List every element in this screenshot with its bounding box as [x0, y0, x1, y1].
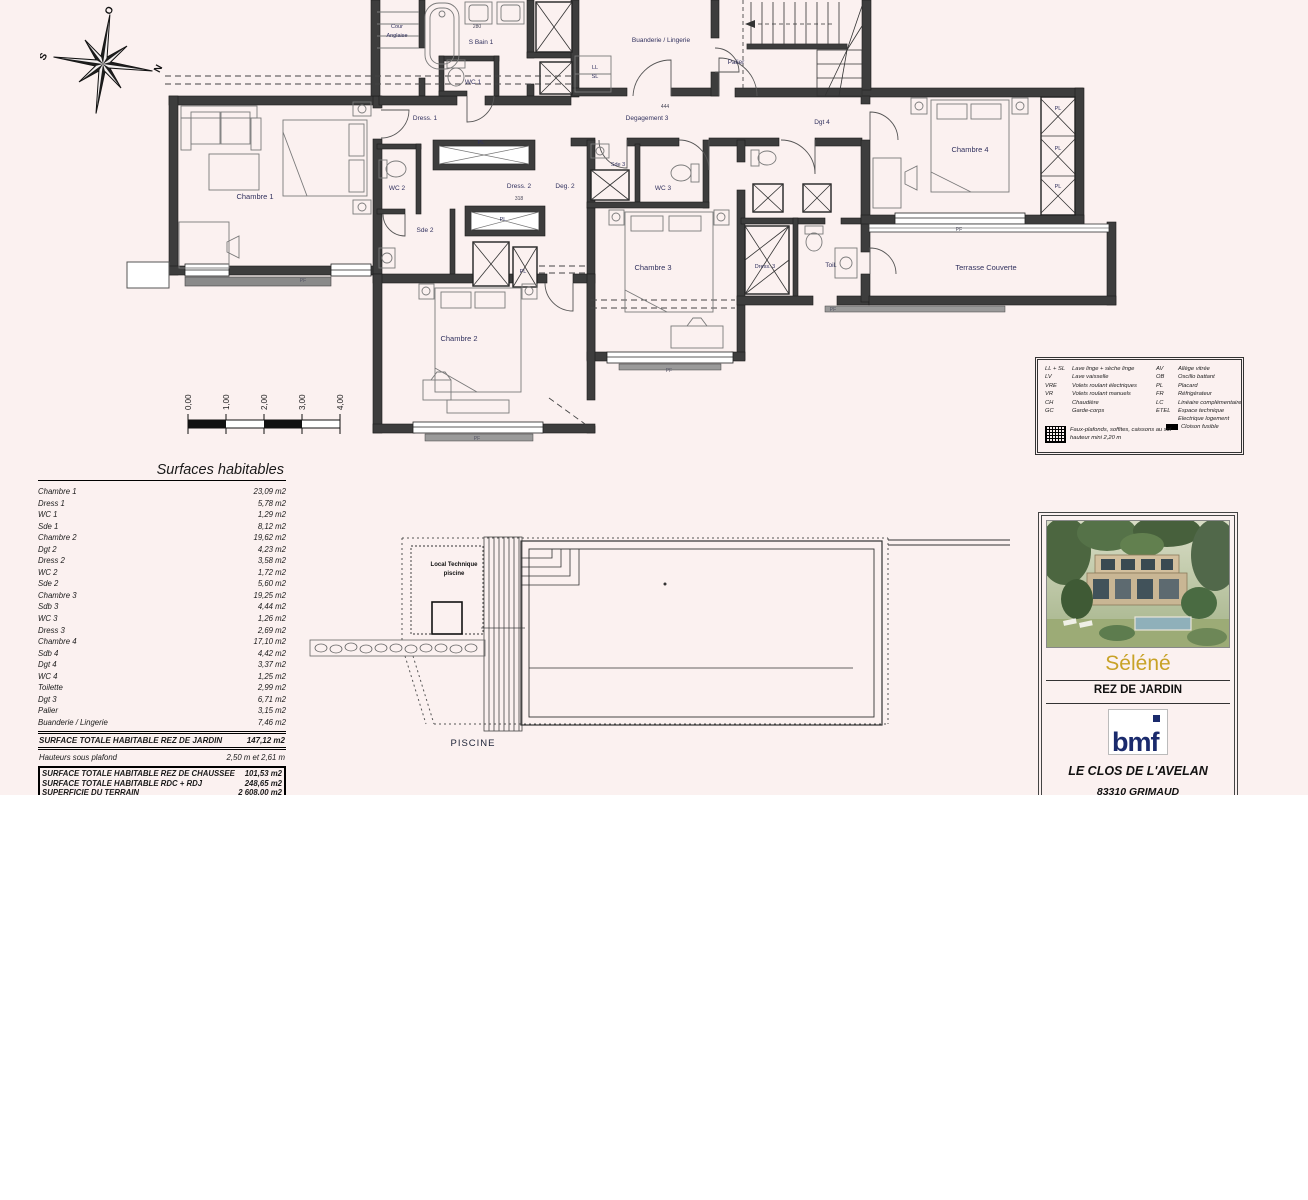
room-label-chambre-2: Chambre 2: [440, 334, 477, 343]
surface-row-label: Dgt 2: [38, 544, 57, 556]
local-technique-box: [411, 546, 483, 634]
surface-row-label: Toilette: [38, 682, 63, 694]
surface-row-value: 4,44 m2: [258, 601, 286, 613]
surface-row-label: WC 2: [38, 567, 58, 579]
surface-row-value: 3,15 m2: [258, 705, 286, 717]
room-label-deg-2: Deg. 2: [555, 183, 575, 190]
legend-desc: Volets roulant manuels: [1072, 390, 1131, 398]
drawing-sheet: O N E S: [0, 0, 1308, 795]
surface-row-label: Palier: [38, 705, 58, 717]
surface-row: Sdb 3 4,44 m2: [38, 601, 286, 613]
room-label-sde-3: Sde 3: [611, 162, 625, 168]
page: O N E S: [0, 0, 1308, 1200]
surfaces-totals-value: 101,53 m2: [245, 769, 282, 779]
room-label-s-bain-1: S Bain 1: [469, 39, 494, 46]
surface-row-value: 4,42 m2: [258, 648, 286, 660]
surfaces-totals-row: SURFACE TOTALE HABITABLE REZ DE CHAUSSEE…: [42, 769, 282, 779]
room-label-chambre-3: Chambre 3: [634, 263, 671, 272]
room-label-dress-2: Dress. 2: [507, 183, 532, 190]
surfaces-total-rdj-value: 147,12 m2: [247, 736, 285, 745]
legend-abbr: LC: [1156, 399, 1178, 407]
project-address-line-2: 83310 GRIMAUD: [1042, 786, 1234, 795]
surface-row-value: 7,46 m2: [258, 717, 286, 729]
surface-row-value: 23,09 m2: [253, 486, 286, 498]
room-label-chambre-1: Chambre 1: [236, 192, 273, 201]
legend-abbr: PL: [1156, 382, 1178, 390]
surface-row: Dress 2 3,58 m2: [38, 555, 286, 567]
surface-row-value: 4,23 m2: [258, 544, 286, 556]
surfaces-rows: Chambre 1 23,09 m2 Dress 1 5,78 m2 WC 1 …: [38, 486, 286, 728]
legend-desc: Lave vaisselle: [1072, 373, 1108, 381]
local-technique-label: Local Technique: [431, 562, 479, 568]
room-label-sde-2: Sde 2: [417, 227, 434, 234]
surface-row: Toilette 2,99 m2: [38, 682, 286, 694]
surface-row-label: Dress 1: [38, 498, 65, 510]
surface-row-label: Chambre 2: [38, 532, 77, 544]
surface-row-label: Sde 1: [38, 521, 58, 533]
surface-row-label: WC 1: [38, 509, 58, 521]
legend-row: VRE Volets roulant électriques: [1045, 382, 1155, 390]
surface-row: WC 3 1,26 m2: [38, 613, 286, 625]
legend-desc: Garde-corps: [1072, 407, 1104, 415]
legend-cloison-row: Cloison fusible: [1166, 423, 1219, 431]
legend-row: FR Réfrigérateur: [1156, 390, 1242, 398]
surfaces-totals-row: SURFACE TOTALE HABITABLE RDC + RDJ 248,6…: [42, 779, 282, 789]
surface-row-value: 8,12 m2: [258, 521, 286, 533]
legend-row: OB Oscillo battant: [1156, 373, 1242, 381]
surface-row-value: 5,78 m2: [258, 498, 286, 510]
surface-row: Sde 1 8,12 m2: [38, 521, 286, 533]
surface-row: Dress 1 5,78 m2: [38, 498, 286, 510]
room-label-toil: Toil.: [825, 262, 837, 269]
legend-row: VR Volets roulant manuels: [1045, 390, 1155, 398]
legend-column-2: AV Allège vitrée OB Oscillo battant PL P…: [1156, 365, 1242, 415]
surface-row-label: Dgt 4: [38, 659, 57, 671]
window-mark-pf-1: PF: [300, 278, 306, 284]
scale-label-2: 2,00: [260, 394, 269, 410]
project-address-line-1: LE CLOS DE L'AVELAN: [1042, 764, 1234, 778]
room-label-dgt-4: Dgt 4: [814, 119, 830, 126]
surface-row-value: 1,25 m2: [258, 671, 286, 683]
project-name: Séléné: [1042, 652, 1234, 676]
pool-title: PISCINE: [450, 738, 495, 749]
legend-abbr: GC: [1045, 407, 1072, 415]
surfaces-totals-label: SUPERFICIE DU TERRAIN: [42, 788, 139, 795]
dimension-label-3: 444: [661, 104, 670, 110]
compass-west-label: O: [103, 5, 116, 17]
room-label-dress-3: Dress. 3: [755, 264, 775, 270]
room-label-cour-anglaise-2: Anglaise: [386, 33, 407, 39]
window-mark-pf-5: PF: [830, 307, 836, 313]
room-label-chambre-4: Chambre 4: [951, 145, 988, 154]
surface-row-label: Chambre 3: [38, 590, 77, 602]
dimension-label-1: 280: [473, 24, 482, 30]
surface-row-value: 1,29 m2: [258, 509, 286, 521]
surface-row-label: Dress 2: [38, 555, 65, 567]
surface-row-label: WC 3: [38, 613, 58, 625]
legend-desc: Volets roulant électriques: [1072, 382, 1137, 390]
legend-note-line-1: Faux-plafonds, soffites, caissons au sol: [1070, 426, 1171, 434]
legend-row: PL Placard: [1156, 382, 1242, 390]
surfaces-table: Surfaces habitables Chambre 1 23,09 m2 D…: [38, 462, 286, 795]
legend-desc: Lave linge + sèche linge: [1072, 365, 1134, 373]
surface-row-label: Chambre 1: [38, 486, 77, 498]
ceiling-heights-label: Hauteurs sous plafond: [39, 753, 117, 762]
surface-row-value: 3,58 m2: [258, 555, 286, 567]
surface-row: Sdb 4 4,42 m2: [38, 648, 286, 660]
surface-row-value: 2,69 m2: [258, 625, 286, 637]
placard-label-5: PL: [500, 217, 507, 223]
surfaces-total-rdj-label: SURFACE TOTALE HABITABLE REZ DE JARDIN: [39, 736, 222, 745]
room-label-sl: SL: [592, 74, 599, 80]
surface-row-label: Dress 3: [38, 625, 65, 637]
pool-pump-box: [432, 602, 462, 634]
surface-row: Dgt 4 3,37 m2: [38, 659, 286, 671]
surface-row-value: 1,72 m2: [258, 567, 286, 579]
dimension-label-2: 318: [515, 196, 524, 202]
villa-photo: [1046, 520, 1230, 648]
window-mark-pf-3: PF: [666, 368, 672, 374]
room-labels: Cour Anglaise S Bain 1 WC 1 Dress. 1 Bua…: [236, 24, 1061, 442]
legend-abbr: LL + SL: [1045, 365, 1072, 373]
window-mark-pf-2: PF: [474, 436, 480, 442]
placard-label-6: PL: [520, 269, 527, 275]
pool-drawing: Local Technique piscine PISCINE: [305, 528, 1015, 753]
divider: [1046, 703, 1230, 704]
stairs: [743, 0, 862, 96]
legend-note-line-2: hauteur mini 2,20 m: [1070, 434, 1171, 442]
scale-label-3: 3,00: [298, 394, 307, 410]
surface-row: Palier 3,15 m2: [38, 705, 286, 717]
surface-row-label: WC 4: [38, 671, 58, 683]
surface-row-value: 1,26 m2: [258, 613, 286, 625]
bmf-logo: bmf: [1108, 709, 1168, 755]
legend-desc: Chaudière: [1072, 399, 1099, 407]
surfaces-totals-label: SURFACE TOTALE HABITABLE REZ DE CHAUSSEE: [42, 769, 235, 779]
level-name: REZ DE JARDIN: [1042, 681, 1234, 699]
room-label-palier: Palier: [728, 59, 745, 66]
surface-row-value: 5,60 m2: [258, 578, 286, 590]
legend-abbr: VRE: [1045, 382, 1072, 390]
surface-row: WC 2 1,72 m2: [38, 567, 286, 579]
legend-abbr: LV: [1045, 373, 1072, 381]
deck-planks: [481, 537, 525, 731]
ceiling-heights-row: Hauteurs sous plafond 2,50 m et 2,61 m: [38, 750, 286, 766]
title-block: Séléné REZ DE JARDIN bmf LE CLOS DE L'AV…: [1038, 512, 1238, 795]
surfaces-totals-value: 248,65 m2: [245, 779, 282, 789]
surface-row-value: 3,37 m2: [258, 659, 286, 671]
placard-label-1: PL: [1055, 106, 1062, 112]
surfaces-totals-value: 2 608,00 m2: [238, 788, 282, 795]
surface-row: WC 4 1,25 m2: [38, 671, 286, 683]
room-label-buanderie: Buanderie / Lingerie: [632, 37, 691, 44]
surface-row: Dress 3 2,69 m2: [38, 625, 286, 637]
legend-row: LL + SL Lave linge + sèche linge: [1045, 365, 1155, 373]
legend-row: LC Linéaire complémentaire: [1156, 399, 1242, 407]
surface-row: Chambre 1 23,09 m2: [38, 486, 286, 498]
local-technique-label-2: piscine: [444, 571, 465, 577]
surface-row: Dgt 2 4,23 m2: [38, 544, 286, 556]
legend-box: LL + SL Lave linge + sèche linge LV Lave…: [1035, 357, 1244, 455]
room-label-wc-3: WC 3: [655, 185, 672, 192]
surface-row-value: 19,62 m2: [253, 532, 286, 544]
surface-row: Chambre 3 19,25 m2: [38, 590, 286, 602]
room-label-wc-1: WC 1: [465, 79, 482, 86]
legend-desc: Placard: [1178, 382, 1198, 390]
title-block-inner: Séléné REZ DE JARDIN bmf LE CLOS DE L'AV…: [1041, 515, 1235, 795]
scale-label-1: 1,00: [222, 394, 231, 410]
legend-desc: Allège vitrée: [1178, 365, 1210, 373]
surface-row-value: 6,71 m2: [258, 694, 286, 706]
surfaces-total-rdj: SURFACE TOTALE HABITABLE REZ DE JARDIN 1…: [38, 731, 286, 750]
surface-row: Buanderie / Lingerie 7,46 m2: [38, 717, 286, 729]
legend-row: AV Allège vitrée: [1156, 365, 1242, 373]
room-label-cour-anglaise: Cour: [391, 24, 403, 30]
surface-row-label: Sdb 3: [38, 601, 58, 613]
surfaces-totals-row: SUPERFICIE DU TERRAIN 2 608,00 m2: [42, 788, 282, 795]
surface-row-label: Sdb 4: [38, 648, 58, 660]
placard-label-2: PL: [1055, 146, 1062, 152]
placard-label-3: PL: [1055, 184, 1062, 190]
compass-south-label: S: [40, 51, 50, 62]
surfaces-totals-label: SURFACE TOTALE HABITABLE RDC + RDJ: [42, 779, 202, 789]
legend-inner: LL + SL Lave linge + sèche linge LV Lave…: [1037, 359, 1242, 453]
scale-label-4: 4,00: [336, 394, 345, 410]
surface-row: WC 1 1,29 m2: [38, 509, 286, 521]
stone-path: [310, 640, 485, 656]
window-mark-pf-4: PF: [956, 227, 962, 233]
surface-row-label: Dgt 3: [38, 694, 57, 706]
surface-row: Chambre 2 19,62 m2: [38, 532, 286, 544]
bmf-logo-text: bmf: [1112, 729, 1159, 756]
scale-label-0: 0,00: [184, 394, 193, 410]
room-label-degagement-3: Degagement 3: [626, 115, 669, 122]
legend-cloison-label: Cloison fusible: [1181, 423, 1219, 431]
legend-desc: Réfrigérateur: [1178, 390, 1212, 398]
legend-abbr: OB: [1156, 373, 1178, 381]
legend-row: LV Lave vaisselle: [1045, 373, 1155, 381]
surface-row: Sde 2 5,60 m2: [38, 578, 286, 590]
deck-edge-line: [888, 540, 1010, 545]
legend-row: GC Garde-corps: [1045, 407, 1155, 415]
surfaces-totals-box: SURFACE TOTALE HABITABLE REZ DE CHAUSSEE…: [38, 766, 286, 795]
legend-note: Faux-plafonds, soffites, caissons au sol…: [1070, 426, 1171, 442]
legend-row: CH Chaudière: [1045, 399, 1155, 407]
surface-row: Dgt 3 6,71 m2: [38, 694, 286, 706]
legend-abbr: AV: [1156, 365, 1178, 373]
legend-abbr: VR: [1045, 390, 1072, 398]
room-label-ll: LL: [592, 65, 598, 71]
surface-row-label: Sde 2: [38, 578, 58, 590]
legend-abbr: ETEL: [1156, 407, 1178, 415]
faux-plafond-hatch-icon: [1045, 426, 1066, 443]
legend-abbr: FR: [1156, 390, 1178, 398]
surfaces-title: Surfaces habitables: [38, 462, 286, 481]
surface-row: Chambre 4 17,10 m2: [38, 636, 286, 648]
surface-row-label: Buanderie / Lingerie: [38, 717, 108, 729]
pool-basin: [521, 541, 882, 725]
legend-desc: Linéaire complémentaire: [1178, 399, 1241, 407]
scale-bar: 0,00 1,00 2,00 3,00 4,00: [182, 388, 352, 440]
legend-abbr: CH: [1045, 399, 1072, 407]
placard-label-4: PL: [478, 140, 485, 146]
room-label-dress-1: Dress. 1: [413, 115, 438, 122]
bmf-logo-dot: [1153, 715, 1160, 722]
surface-row-label: Chambre 4: [38, 636, 77, 648]
surface-row-value: 19,25 m2: [253, 590, 286, 602]
room-label-terrasse-couverte: Terrasse Couverte: [955, 263, 1016, 272]
legend-column-1: LL + SL Lave linge + sèche linge LV Lave…: [1045, 365, 1155, 415]
surface-row-value: 2,99 m2: [258, 682, 286, 694]
surface-row-value: 17,10 m2: [253, 636, 286, 648]
legend-desc: Oscillo battant: [1178, 373, 1215, 381]
room-label-wc-2: WC 2: [389, 185, 406, 192]
ceiling-heights-value: 2,50 m et 2,61 m: [226, 753, 285, 762]
